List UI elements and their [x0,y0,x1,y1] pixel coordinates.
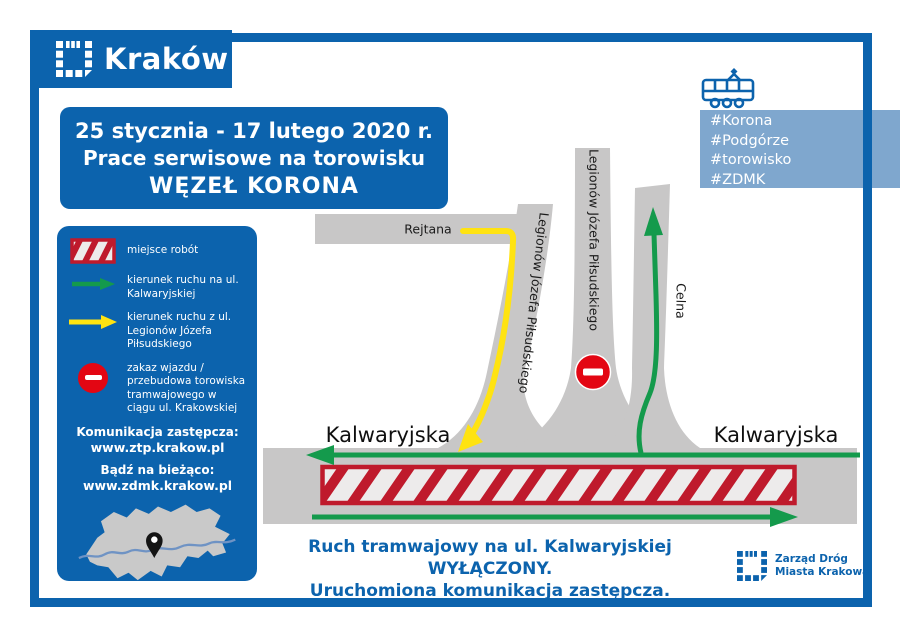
replacement-service-heading: Komunikacja zastępcza: [68,425,247,440]
road-label-rejtana: Rejtana [404,222,451,237]
hashtag: #torowisko [710,151,900,171]
legend-label: kierunek ruchu z ul. Legionów Józefa Pił… [127,310,247,352]
title-box: 25 stycznia - 17 lutego 2020 r. Prace se… [60,107,448,209]
legend-sidebar: miejsce robót kierunek ruchu na ul. Kalw… [57,226,257,581]
legend-label: miejsce robót [127,244,198,258]
work-area-swatch-icon [70,238,116,264]
replacement-service-url: www.ztp.krakow.pl [68,440,247,456]
legend-item-work-area: miejsce robót [68,238,247,264]
road-label-legionow-middle: Legionów Józefa Piłsudskiego [587,149,602,331]
zdmk-name-line-1: Zarząd Dróg [775,553,869,566]
zdmk-name-line-2: Miasta Krakowa [775,566,869,579]
updates-url: www.zdmk.krakow.pl [68,478,247,494]
hashtag-panel: #Korona #Podgórze #torowisko #ZDMK [700,110,900,188]
updates-heading: Bądź na bieżąco: [68,463,247,478]
legend-item-no-entry: zakaz wjazdu / przebudowa torowiska tram… [68,361,247,416]
notice-line-1: Ruch tramwajowy na ul. Kalwaryjskiej WYŁ… [255,536,725,580]
road-label-kalwaryjska-left: Kalwaryjska [326,423,451,447]
tram-icon [699,66,761,112]
work-zone-hatch [323,467,795,503]
notice-line-2: Uruchomiona komunikacja zastępcza. [255,580,725,602]
title-junction-name: WĘZEŁ KORONA [60,172,448,201]
hashtag: #Korona [710,112,900,132]
pin-hole [151,536,157,542]
legend-item-green-arrow: kierunek ruchu na ul. Kalwaryjskiej [68,273,247,301]
footer-notice: Ruch tramwajowy na ul. Kalwaryjskiej WYŁ… [255,536,725,602]
legend-label: kierunek ruchu na ul. Kalwaryjskiej [127,273,247,301]
road-label-celna: Celna [673,283,689,319]
hashtag: #ZDMK [710,171,900,191]
contact-info: Komunikacja zastępcza: www.ztp.krakow.pl… [68,425,247,494]
legend-item-yellow-arrow: kierunek ruchu z ul. Legionów Józefa Pił… [68,310,247,352]
road-label-kalwaryjska-right: Kalwaryjska [714,423,839,447]
krakow-city-map [70,501,246,582]
zdmk-logo-icon [737,551,767,581]
no-entry-icon [78,363,108,393]
legend-label: zakaz wjazdu / przebudowa torowiska tram… [127,361,247,416]
krakow-logo-icon [56,41,92,77]
krakow-logo-bar: Kraków [30,30,232,88]
green-arrow-icon [70,277,116,291]
zdmk-logo: Zarząd Dróg Miasta Krakowa [737,551,869,581]
poster-canvas: Legionów Józefa Piłsudskiego Legionów Jó… [0,0,900,635]
hashtag: #Podgórze [710,132,900,152]
krakow-logotype: Kraków [104,42,229,76]
title-subtitle: Prace serwisowe na torowisku [60,145,448,172]
no-entry-bar [583,369,603,376]
yellow-arrow-icon [68,314,118,330]
title-dates: 25 stycznia - 17 lutego 2020 r. [60,117,448,145]
